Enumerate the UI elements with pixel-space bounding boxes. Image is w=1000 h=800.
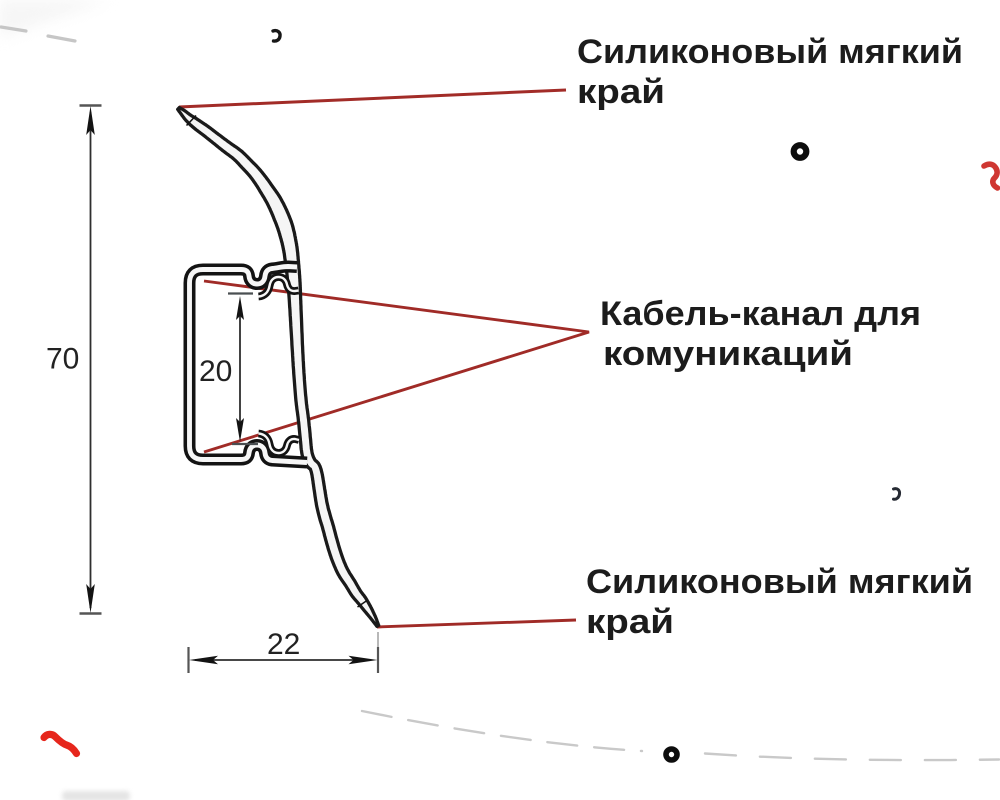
svg-text:Кабель-канал для: Кабель-канал для <box>600 295 921 333</box>
svg-text:20: 20 <box>199 355 232 388</box>
svg-text:70: 70 <box>46 343 79 376</box>
svg-text:край: край <box>586 603 674 641</box>
svg-text:22: 22 <box>267 628 300 661</box>
svg-text:Силиконовый мягкий: Силиконовый мягкий <box>577 33 963 71</box>
svg-text:комуникаций: комуникаций <box>603 335 853 373</box>
svg-text:край: край <box>577 73 665 111</box>
svg-text:Силиконовый мягкий: Силиконовый мягкий <box>586 563 973 601</box>
